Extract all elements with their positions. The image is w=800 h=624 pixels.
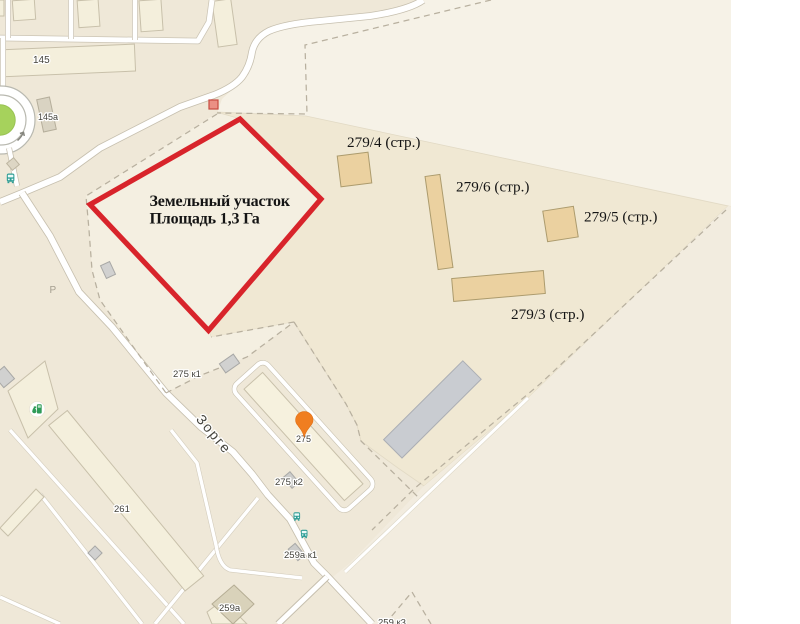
- svg-text:279/6 (стр.): 279/6 (стр.): [456, 179, 529, 196]
- svg-text:275 к2: 275 к2: [275, 477, 303, 488]
- svg-text:Площадь 1,3 Га: Площадь 1,3 Га: [150, 211, 260, 228]
- svg-text:279/4 (стр.): 279/4 (стр.): [347, 134, 420, 151]
- svg-text:145a: 145a: [38, 112, 58, 122]
- svg-text:259 к3: 259 к3: [378, 618, 406, 624]
- svg-text:Земельный участок: Земельный участок: [150, 193, 291, 210]
- svg-text:279/5 (стр.): 279/5 (стр.): [584, 209, 657, 226]
- svg-text:261: 261: [114, 504, 130, 515]
- svg-text:259а: 259а: [219, 603, 241, 614]
- svg-text:Р: Р: [50, 285, 57, 296]
- svg-text:145: 145: [33, 55, 50, 66]
- svg-text:275 к1: 275 к1: [173, 369, 201, 380]
- svg-text:279/3 (стр.): 279/3 (стр.): [511, 306, 584, 323]
- svg-text:259а к1: 259а к1: [284, 550, 317, 561]
